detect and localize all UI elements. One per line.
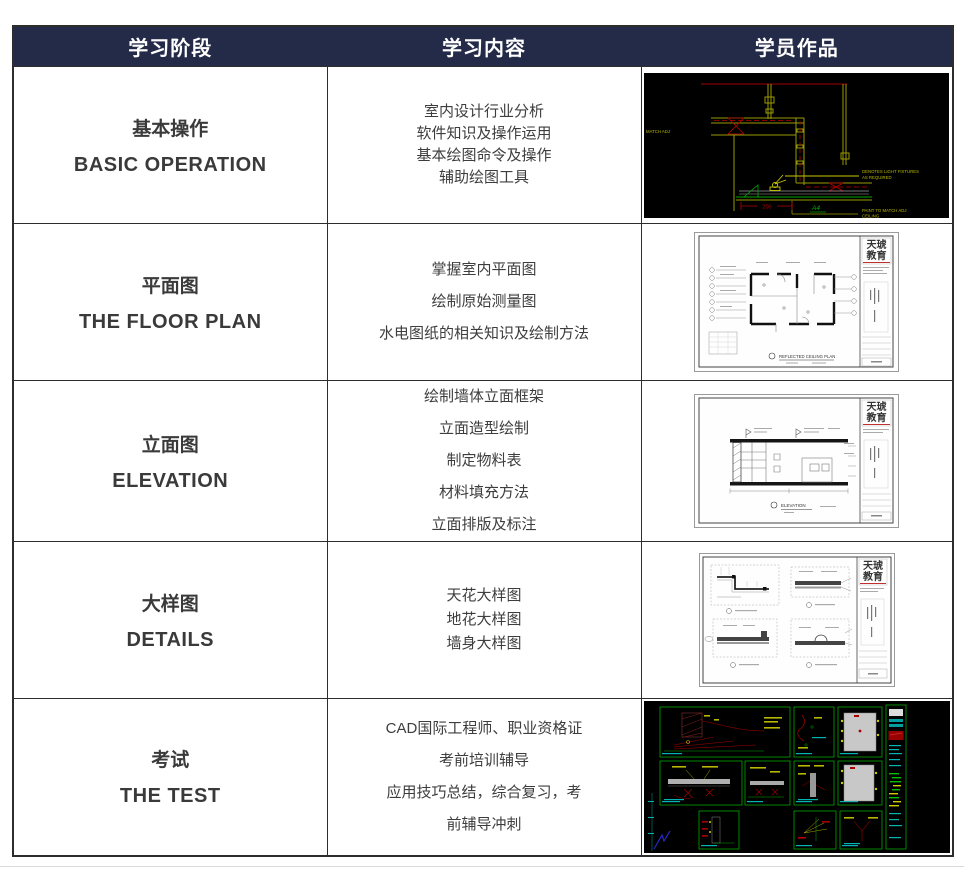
logo-jiaoyu: 教育 (866, 249, 887, 262)
logo-jiaoyu: 教育 (862, 570, 883, 583)
cad-note-fixtures-1: DENOTES LIGHT FIXTURES (862, 169, 919, 174)
stage-cell: 大样图 DETAILS (13, 542, 327, 699)
sheet-caption: ELEVATION (781, 503, 806, 508)
artwork-cell (641, 699, 953, 856)
content-line: 绘制原始测量图 (328, 286, 641, 318)
content-cell: CAD国际工程师、职业资格证 考前培训辅导 应用技巧总结，综合复习，考 前辅导冲… (327, 699, 641, 856)
stage-name-en: DETAILS (14, 629, 327, 652)
content-line: 立面造型绘制 (328, 413, 641, 445)
cad-note-paint-2: CEILING (862, 213, 880, 218)
curriculum-table: 学习阶段 学习内容 学员作品 基本操作 BASIC OPERATION 室内设计… (12, 25, 954, 857)
elevation-sheet-image: 天琥 教育 (694, 394, 899, 528)
stage-name-zh: 立面图 (14, 430, 327, 457)
content-line: 墙身大样图 (328, 632, 641, 656)
artwork-cell: MATCH ADJ DENOTES LIGHT FIXTURES AS REQU… (641, 67, 953, 224)
artwork-cell: 天琥 教育 (641, 542, 953, 699)
content-line: 软件知识及操作运用 (328, 123, 641, 145)
content-cell: 天花大样图 地花大样图 墙身大样图 (327, 542, 641, 699)
cad-ceiling-detail-image: MATCH ADJ DENOTES LIGHT FIXTURES AS REQU… (644, 73, 949, 218)
content-line: 材料填充方法 (328, 477, 641, 509)
floor-plan-sheet-image: 天琥 教育 (694, 232, 899, 372)
content-line: 掌握室内平面图 (328, 254, 641, 286)
page: 学习阶段 学习内容 学员作品 基本操作 BASIC OPERATION 室内设计… (0, 0, 964, 870)
cad-note-paint-1: PAINT TO MATCH ADJ (862, 208, 907, 213)
stage-name-en: ELEVATION (14, 470, 327, 493)
artwork-cell: 天琥 教育 (641, 224, 953, 381)
stage-name-zh: 基本操作 (14, 114, 327, 141)
content-line: 天花大样图 (328, 584, 641, 608)
content-line: 地花大样图 (328, 608, 641, 632)
artwork-cell: 天琥 教育 (641, 381, 953, 542)
panel-3-content (841, 713, 879, 751)
stage-name-zh: 平面图 (14, 271, 327, 298)
stage-name-en: BASIC OPERATION (14, 154, 327, 177)
content-line: 考前培训辅导 (328, 745, 641, 777)
content-line: 绘制墙体立面框架 (328, 381, 641, 413)
table-row-test: 考试 THE TEST CAD国际工程师、职业资格证 考前培训辅导 应用技巧总结… (13, 699, 953, 856)
stage-name-zh: 大样图 (14, 589, 327, 616)
stage-cell: 立面图 ELEVATION (13, 381, 327, 542)
column-header-works: 学员作品 (641, 26, 953, 67)
logo-tianhu: 天琥 (867, 238, 887, 251)
stage-cell: 平面图 THE FLOOR PLAN (13, 224, 327, 381)
table-row-floor-plan: 平面图 THE FLOOR PLAN 掌握室内平面图 绘制原始测量图 水电图纸的… (13, 224, 953, 381)
stage-cell: 基本操作 BASIC OPERATION (13, 67, 327, 224)
cad-note-left: MATCH ADJ (646, 129, 670, 134)
cad-dim-200: 200 (763, 204, 772, 210)
header-row: 学习阶段 学习内容 学员作品 (13, 26, 953, 67)
table-row-elevation: 立面图 ELEVATION 绘制墙体立面框架 立面造型绘制 制定物料表 材料填充… (13, 381, 953, 542)
table-row-details: 大样图 DETAILS 天花大样图 地花大样图 墙身大样图 天琥 教育 (13, 542, 953, 699)
column-header-content: 学习内容 (327, 26, 641, 67)
content-line: 立面排版及标注 (328, 509, 641, 541)
logo-tianhu: 天琥 (863, 559, 883, 572)
content-line: 前辅导冲刺 (328, 809, 641, 841)
content-line: 制定物料表 (328, 445, 641, 477)
table-row-basic-operation: 基本操作 BASIC OPERATION 室内设计行业分析 软件知识及操作运用 … (13, 67, 953, 224)
sheet-caption: REFLECTED CEILING PLAN (779, 354, 835, 359)
content-line: 辅助绘图工具 (328, 167, 641, 189)
content-line: CAD国际工程师、职业资格证 (328, 713, 641, 745)
stage-name-en: THE TEST (14, 785, 327, 808)
content-cell: 绘制墙体立面框架 立面造型绘制 制定物料表 材料填充方法 立面排版及标注 (327, 381, 641, 542)
column-header-stage: 学习阶段 (13, 26, 327, 67)
content-line: 应用技巧总结，综合复习，考 (328, 777, 641, 809)
details-sheet-image: 天琥 教育 (699, 553, 895, 687)
content-line: 基本绘图命令及操作 (328, 145, 641, 167)
content-cell: 掌握室内平面图 绘制原始测量图 水电图纸的相关知识及绘制方法 (327, 224, 641, 381)
cad-note-fixtures-2: AS REQUIRED (862, 175, 892, 180)
logo-tianhu: 天琥 (867, 400, 887, 413)
logo-jiaoyu: 教育 (866, 411, 887, 424)
cad-exam-sheet-image (644, 701, 950, 853)
stage-name-en: THE FLOOR PLAN (14, 311, 327, 334)
stage-cell: 考试 THE TEST (13, 699, 327, 856)
stage-name-zh: 考试 (14, 745, 327, 772)
cad-tag-a4: A4 (811, 205, 820, 212)
content-cell: 室内设计行业分析 软件知识及操作运用 基本绘图命令及操作 辅助绘图工具 (327, 67, 641, 224)
panel-7-content (841, 765, 877, 801)
content-line: 水电图纸的相关知识及绘制方法 (328, 318, 641, 350)
content-line: 室内设计行业分析 (328, 101, 641, 123)
bottom-divider (0, 866, 964, 867)
